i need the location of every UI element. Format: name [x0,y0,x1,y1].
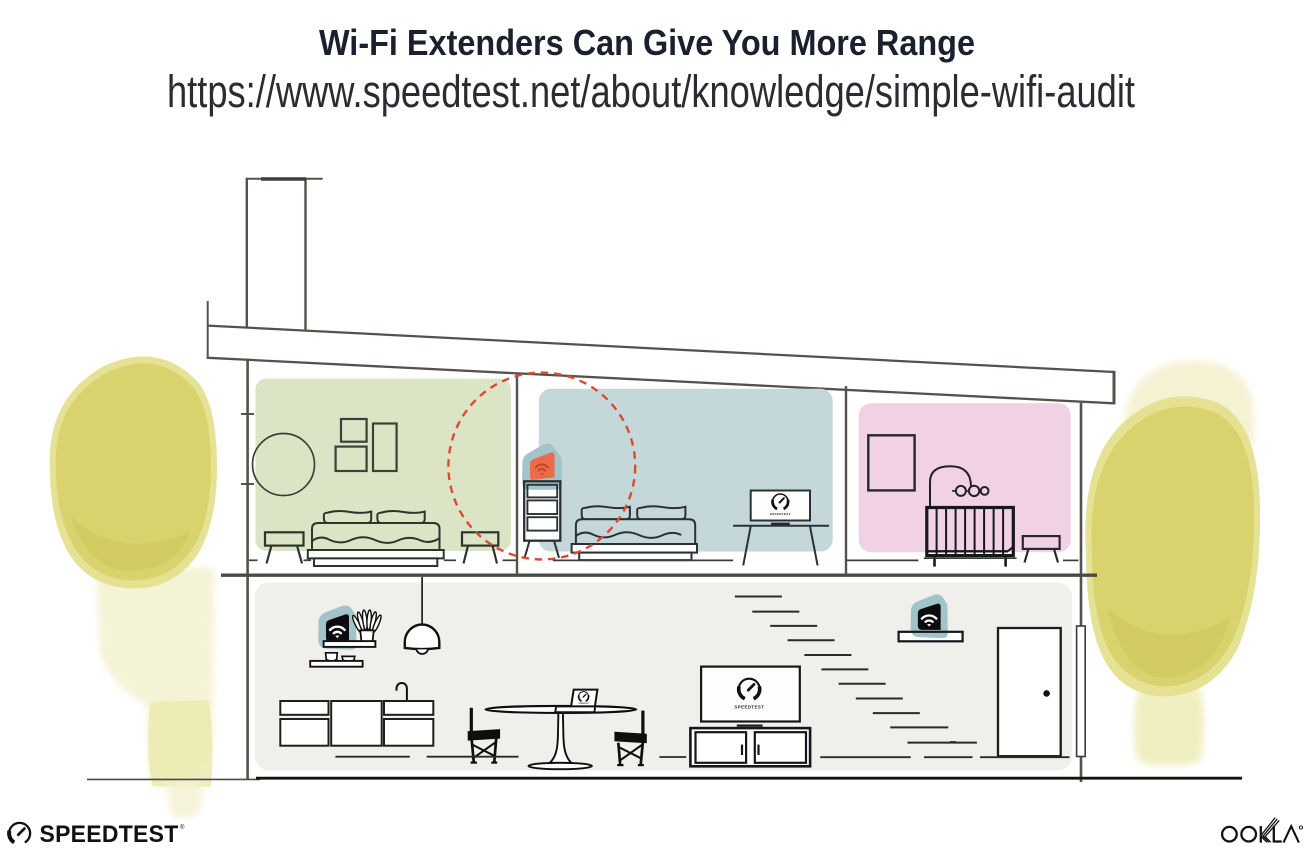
svg-text:SPEEDTEST: SPEEDTEST [579,703,590,705]
svg-text:®: ® [180,824,185,831]
svg-text:SPEEDTEST: SPEEDTEST [770,512,791,516]
svg-text:Wi-Fi Extenders Can Give You M: Wi-Fi Extenders Can Give You More Range [319,22,975,63]
svg-text:SPEEDTEST: SPEEDTEST [734,704,764,709]
svg-text:https://www.speedtest.net/abou: https://www.speedtest.net/about/knowledg… [167,66,1135,117]
svg-text:SPEEDTEST: SPEEDTEST [40,821,179,848]
